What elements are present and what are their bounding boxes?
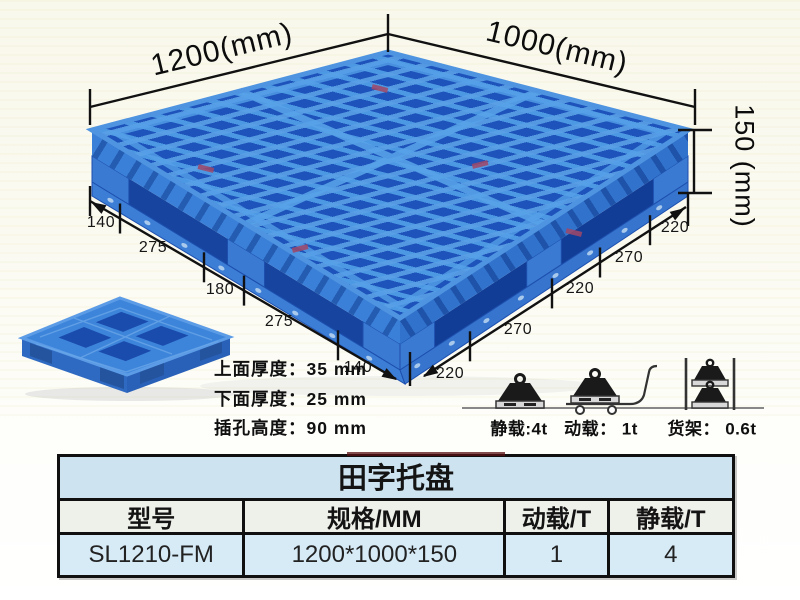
dynamic-load-label: 动载： 1t <box>564 415 638 440</box>
table-header-row: 型号 规格/MM 动载/T 静载/T <box>60 501 732 535</box>
dim-label-height: 150 (mm) <box>729 104 760 228</box>
cell-model: SL1210-FM <box>60 535 245 575</box>
dim-label: 220 <box>566 280 594 298</box>
cell-static-load: 4 <box>610 535 732 575</box>
spec-label: 插孔高度： <box>214 418 307 438</box>
dim-label: 275 <box>265 313 293 331</box>
static-load-label: 静载:4t <box>490 415 547 440</box>
table-row: SL1210-FM 1200*1000*150 1 4 <box>60 535 732 575</box>
dim-label: 180 <box>206 281 234 299</box>
rack-load-label: 货架： 0.6t <box>667 415 756 440</box>
cell-dynamic-load: 1 <box>506 535 609 575</box>
table-title: 田字托盘 <box>60 457 732 501</box>
dim-label: 275 <box>139 239 167 257</box>
cell-spec: 1200*1000*150 <box>245 535 506 575</box>
spec-table: 田字托盘 型号 规格/MM 动载/T 静载/T SL1210-FM 1200*1… <box>57 454 735 578</box>
spec-label: 上面厚度： <box>214 359 307 379</box>
scan-artifact <box>347 452 505 456</box>
spec-value: 35 mm <box>307 359 367 379</box>
small-pallet <box>22 298 230 393</box>
header-dynamic-load: 动载/T <box>506 501 609 532</box>
pallet-spec-sheet: { "diagram": { "dim_width": "1200(mm)", … <box>0 0 800 600</box>
header-spec: 规格/MM <box>245 501 506 532</box>
spec-value: 90 mm <box>307 418 367 438</box>
dim-label: 220 <box>661 219 689 237</box>
spec-label: 下面厚度： <box>214 389 307 409</box>
dynamic-load-icon <box>566 366 657 414</box>
dim-label: 270 <box>504 321 532 339</box>
dim-label: 140 <box>87 214 115 232</box>
dim-label: 270 <box>615 249 643 267</box>
rack-load-icon <box>686 358 734 410</box>
dim-label: 220 <box>436 365 464 383</box>
header-model: 型号 <box>60 501 245 532</box>
spec-value: 25 mm <box>307 389 367 409</box>
header-static-load: 静载/T <box>610 501 732 532</box>
